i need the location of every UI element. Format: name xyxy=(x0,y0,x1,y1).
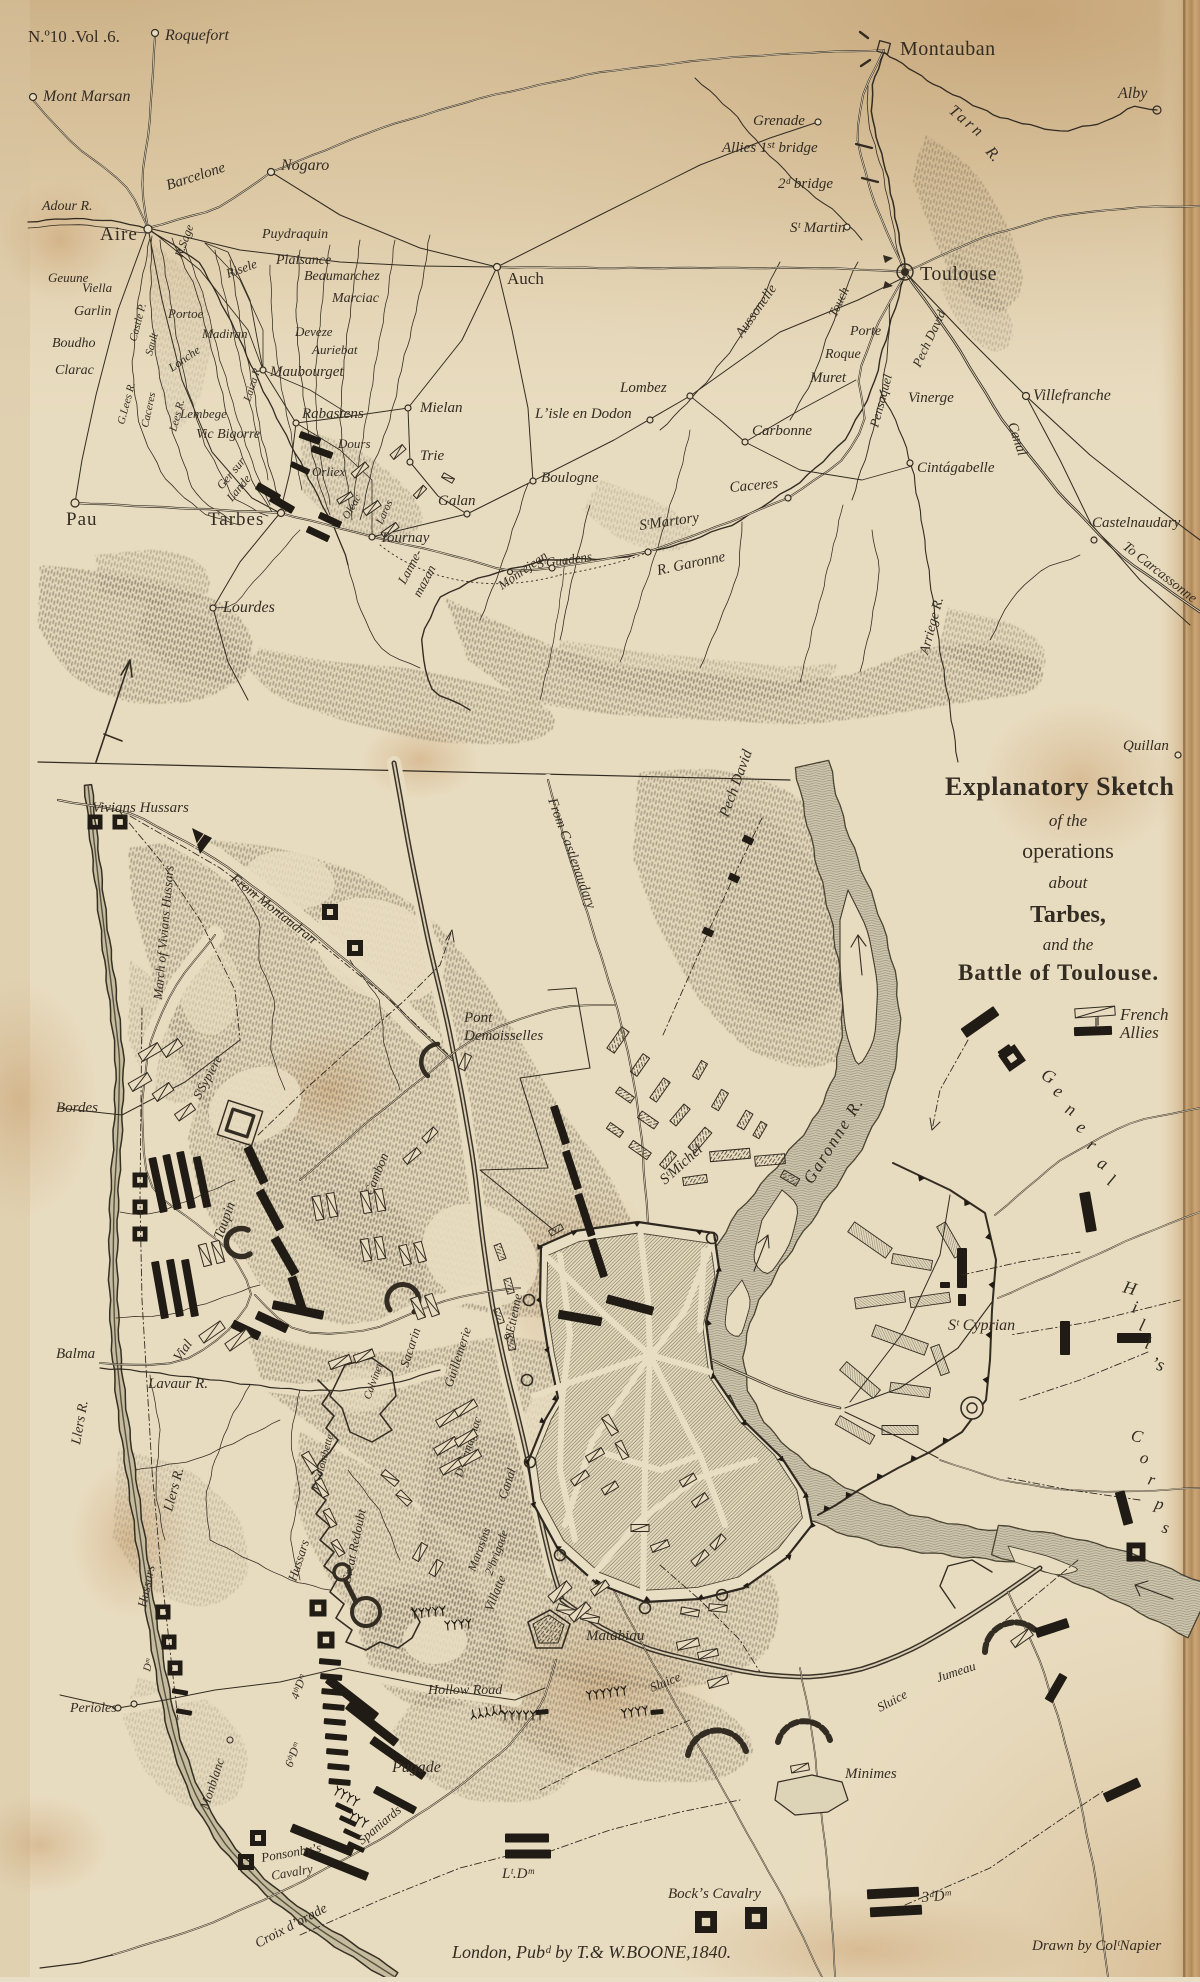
svg-text:Vic Bigorre: Vic Bigorre xyxy=(196,427,260,442)
svg-text:Porte: Porte xyxy=(849,324,881,339)
svg-text:Lourdes: Lourdes xyxy=(222,599,275,616)
svg-text:Mielan: Mielan xyxy=(419,400,463,416)
svg-text:Tournay: Tournay xyxy=(380,530,430,546)
svg-text:Sᵗ Cyprian: Sᵗ Cyprian xyxy=(948,1317,1015,1334)
svg-text:2ᵈ bridge: 2ᵈ bridge xyxy=(778,176,833,192)
svg-text:Explanatory Sketch: Explanatory Sketch xyxy=(945,772,1174,801)
svg-text:Montauban: Montauban xyxy=(900,38,996,60)
svg-text:about: about xyxy=(1049,873,1089,892)
svg-text:Lavaur R.: Lavaur R. xyxy=(147,1376,208,1392)
svg-text:Auch: Auch xyxy=(507,269,544,288)
svg-text:Sᵗ Martin: Sᵗ Martin xyxy=(790,220,845,236)
svg-text:Lʼisle en Dodon: Lʼisle en Dodon xyxy=(534,406,632,422)
svg-text:Roquefort: Roquefort xyxy=(164,27,230,44)
svg-text:Toulouse: Toulouse xyxy=(920,263,997,285)
svg-text:Perioles: Perioles xyxy=(69,1701,117,1716)
svg-text:Pont: Pont xyxy=(463,1010,493,1026)
svg-text:Deveze: Deveze xyxy=(294,324,333,339)
svg-text:Balma: Balma xyxy=(56,1346,95,1362)
svg-text:Allies: Allies xyxy=(1119,1023,1159,1042)
svg-text:Lᵗ.Dᵐ: Lᵗ.Dᵐ xyxy=(501,1866,534,1882)
svg-text:Marciac: Marciac xyxy=(331,291,380,306)
svg-text:Demoisselles: Demoisselles xyxy=(463,1028,543,1044)
svg-text:Cintágabelle: Cintágabelle xyxy=(917,460,995,476)
svg-text:Orliex: Orliex xyxy=(312,464,345,479)
svg-text:Galan: Galan xyxy=(438,493,476,509)
svg-text:Grenade: Grenade xyxy=(753,113,805,129)
svg-text:Clarac: Clarac xyxy=(55,363,95,378)
svg-text:Muret: Muret xyxy=(809,370,847,386)
svg-text:Tarbes,: Tarbes, xyxy=(1030,902,1106,928)
svg-text:Vinerge: Vinerge xyxy=(908,390,954,406)
svg-text:Matabiau: Matabiau xyxy=(585,1628,644,1644)
svg-text:Bockʼs Cavalry: Bockʼs Cavalry xyxy=(668,1886,761,1902)
svg-text:Drawn by ColᵗNapier: Drawn by ColᵗNapier xyxy=(1031,1938,1161,1954)
svg-text:Maubourget: Maubourget xyxy=(269,364,344,380)
svg-text:Pugade: Pugade xyxy=(391,1759,441,1776)
svg-text:Mont Marsan: Mont Marsan xyxy=(42,88,131,105)
svg-text:Carbonne: Carbonne xyxy=(752,423,812,439)
svg-text:Roque: Roque xyxy=(824,347,861,362)
svg-text:3ᵈDᵐ: 3ᵈDᵐ xyxy=(920,1887,952,1906)
svg-text:Boudho: Boudho xyxy=(52,336,96,351)
svg-text:Garlin: Garlin xyxy=(74,304,111,319)
svg-text:and the: and the xyxy=(1043,935,1094,954)
svg-text:Lombez: Lombez xyxy=(619,380,667,396)
svg-text:Hollow Road: Hollow Road xyxy=(427,1683,503,1698)
svg-text:Battle of Toulouse.: Battle of Toulouse. xyxy=(958,960,1159,985)
svg-text:Minimes: Minimes xyxy=(844,1766,897,1782)
svg-text:London, Pubᵈ by T.& W.BOONE,18: London, Pubᵈ by T.& W.BOONE,1840. xyxy=(451,1942,731,1962)
svg-text:Aire: Aire xyxy=(100,224,138,245)
svg-text:Viella: Viella xyxy=(82,280,113,295)
svg-text:operations: operations xyxy=(1022,838,1114,863)
svg-text:Trie: Trie xyxy=(420,448,445,464)
svg-text:Alby: Alby xyxy=(1117,85,1148,102)
svg-text:Lembege: Lembege xyxy=(179,406,227,421)
svg-text:Villefranche: Villefranche xyxy=(1033,387,1111,404)
svg-text:Adour R.: Adour R. xyxy=(41,199,93,214)
svg-text:Vivians Hussars: Vivians Hussars xyxy=(92,800,189,816)
svg-text:of the: of the xyxy=(1049,811,1088,830)
svg-text:Rabastens: Rabastens xyxy=(301,406,364,422)
svg-text:Portoe: Portoe xyxy=(167,306,204,321)
svg-text:Puydraquin: Puydraquin xyxy=(261,227,328,242)
svg-text:Bordes: Bordes xyxy=(56,1100,98,1116)
svg-text:Madiran: Madiran xyxy=(201,326,248,341)
svg-text:Beaumarchez: Beaumarchez xyxy=(304,269,380,284)
svg-text:Pau: Pau xyxy=(66,509,98,530)
svg-text:Dours: Dours xyxy=(337,436,371,451)
svg-text:Quillan: Quillan xyxy=(1123,738,1169,754)
svg-text:Nogaro: Nogaro xyxy=(280,157,329,174)
svg-text:Boulogne: Boulogne xyxy=(541,470,599,486)
svg-text:Castelnaudary: Castelnaudary xyxy=(1092,515,1181,531)
svg-text:French: French xyxy=(1119,1005,1168,1024)
svg-text:N.º10 .Vol .6.: N.º10 .Vol .6. xyxy=(28,27,120,46)
svg-text:Plaisance: Plaisance xyxy=(275,253,331,268)
svg-text:Tarbes: Tarbes xyxy=(208,509,264,530)
svg-text:Auriebat: Auriebat xyxy=(311,342,358,357)
